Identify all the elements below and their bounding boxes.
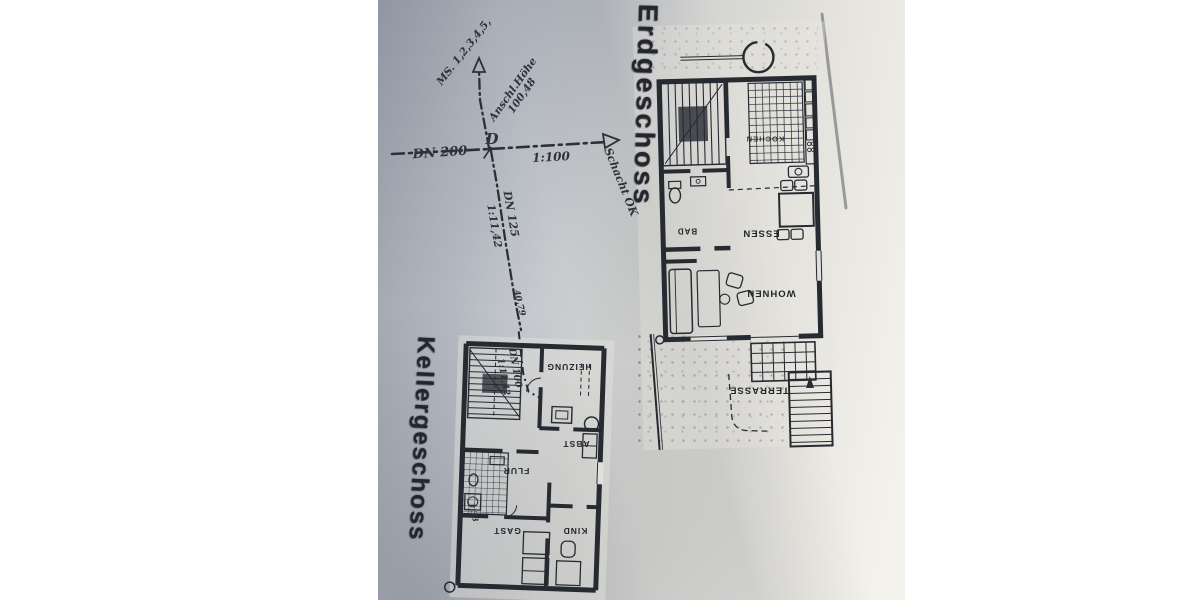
room-label-hall: FLUR — [503, 466, 530, 476]
room-label-heating: HEIZUNG — [546, 362, 591, 372]
room-label-guest: GAST — [493, 526, 521, 536]
screenshot-root: Erdgeschoss Kellergeschoss DN 200 D 1:10… — [0, 0, 1200, 600]
room-label-kitchen: KOCHEN — [746, 135, 785, 144]
junction-letter-note: D — [485, 130, 498, 148]
room-label-dining: ESSEN — [742, 228, 779, 239]
basement-plan-drawing — [445, 329, 624, 600]
room-label-child: KIND — [563, 526, 588, 536]
room-label-storage: ABST — [562, 439, 589, 449]
room-label-living: WOHNEN — [746, 288, 795, 299]
floor-plan-photo: Erdgeschoss Kellergeschoss DN 200 D 1:10… — [378, 0, 905, 600]
room-label-bath: BAD — [677, 227, 697, 236]
room-label-terrace: TERRASSE — [729, 385, 789, 396]
ground-floor-title: Erdgeschoss — [628, 4, 663, 175]
scale-note: 1:100 — [532, 149, 571, 165]
